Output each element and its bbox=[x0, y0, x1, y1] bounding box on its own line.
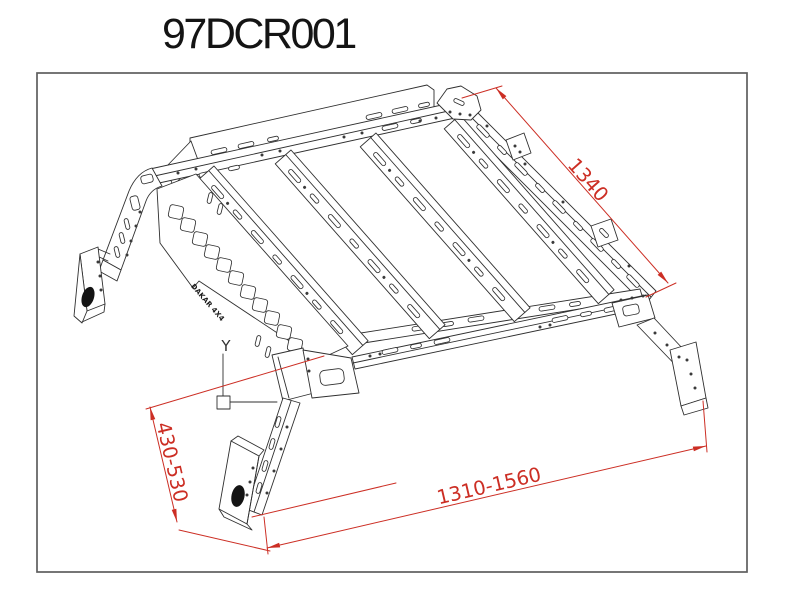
rack-drawing-svg: DAKAR 4X4 bbox=[0, 0, 800, 598]
datum-square bbox=[217, 396, 230, 409]
rear-right-leg bbox=[612, 295, 708, 416]
dim-label-1340: 1340 bbox=[563, 154, 613, 206]
drawing-frame bbox=[37, 73, 747, 572]
leg-corner-bracket bbox=[272, 348, 359, 401]
axis-label-y: Y bbox=[220, 337, 231, 355]
dimension-1310-1560: 1310-1560 bbox=[252, 401, 707, 554]
technical-drawing-page: 97DCR001 bbox=[0, 0, 800, 598]
corner-post bbox=[99, 168, 162, 281]
dim-label-1310-1560: 1310-1560 bbox=[435, 463, 544, 509]
dim-label-430-530: 430-530 bbox=[152, 420, 193, 505]
